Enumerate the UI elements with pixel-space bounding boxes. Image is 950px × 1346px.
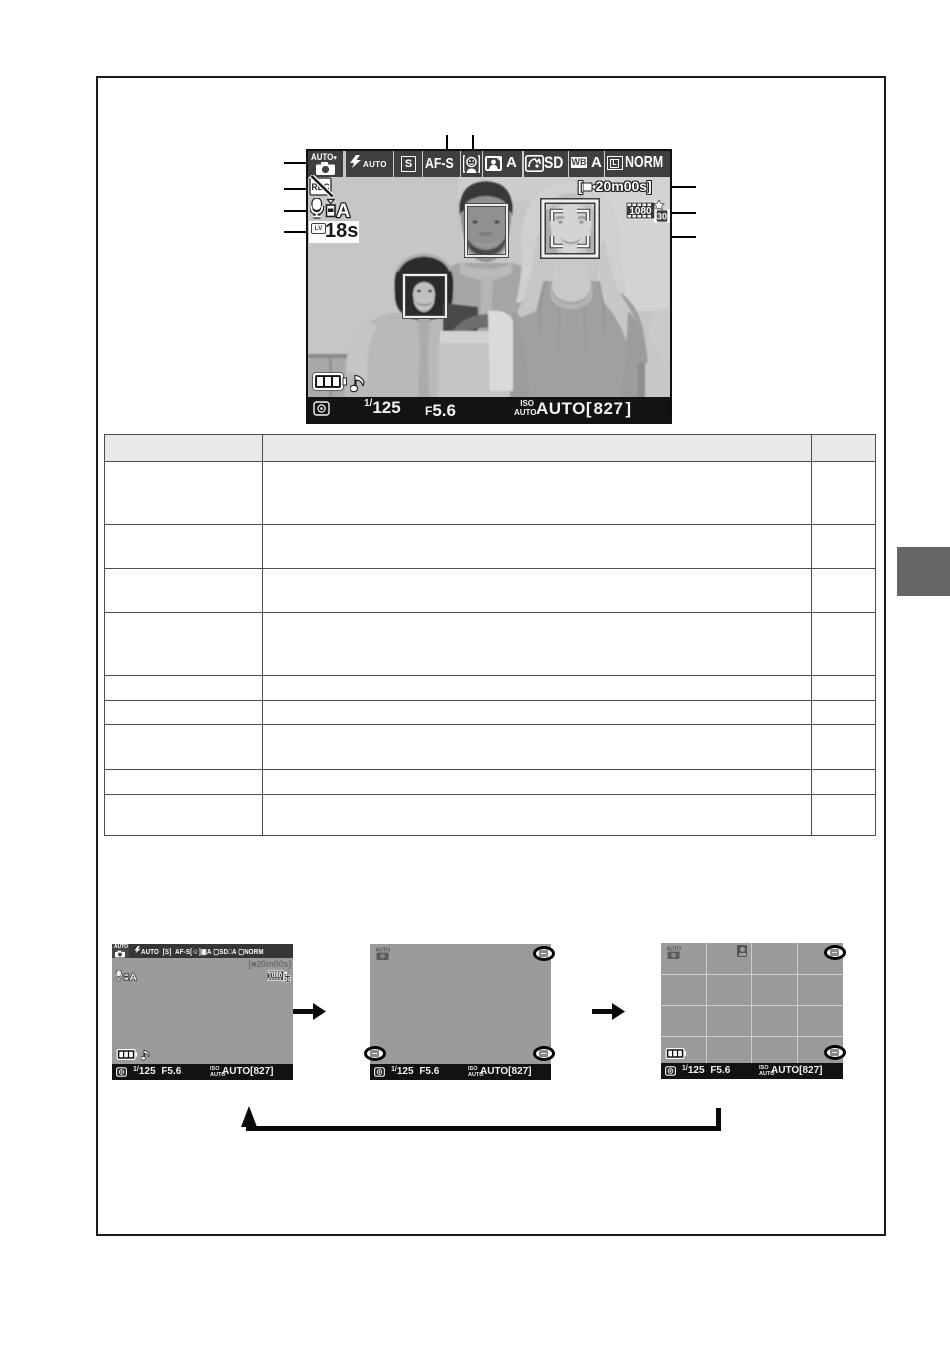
svg-text:1080: 1080 [268,973,282,980]
svg-text:A: A [337,201,351,220]
svg-text:30: 30 [284,977,290,983]
svg-text:30: 30 [657,212,667,222]
svg-text:A: A [130,972,138,982]
svg-text:1080: 1080 [629,206,652,217]
